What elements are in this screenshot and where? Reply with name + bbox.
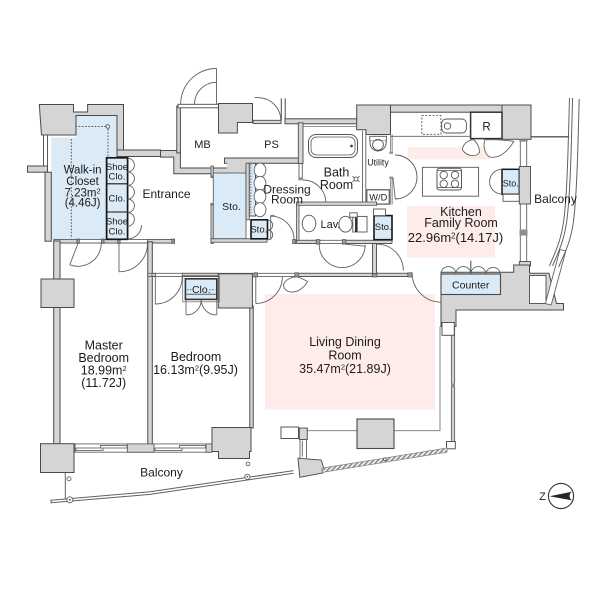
svg-text:Room: Room bbox=[328, 348, 361, 362]
svg-text:(4.46J): (4.46J) bbox=[65, 198, 101, 210]
svg-text:Balcony: Balcony bbox=[140, 465, 183, 479]
svg-text:Room: Room bbox=[271, 193, 303, 207]
svg-text:Entrance: Entrance bbox=[142, 187, 190, 201]
svg-text:Utility: Utility bbox=[367, 158, 389, 168]
svg-text:Lav.: Lav. bbox=[321, 219, 341, 231]
svg-text:(11.72J): (11.72J) bbox=[81, 376, 126, 390]
svg-text:Sto.: Sto. bbox=[503, 178, 519, 188]
svg-text:Z: Z bbox=[539, 491, 546, 503]
svg-text:MB: MB bbox=[194, 139, 211, 151]
svg-text:Sto.: Sto. bbox=[375, 222, 392, 233]
svg-text:Clo.: Clo. bbox=[192, 284, 211, 296]
svg-text:Bedroom: Bedroom bbox=[171, 350, 222, 364]
svg-text:R: R bbox=[482, 122, 490, 134]
svg-text:Clo.: Clo. bbox=[109, 172, 126, 183]
svg-text:W/D: W/D bbox=[369, 192, 387, 202]
svg-text:Clo.: Clo. bbox=[109, 193, 126, 204]
svg-text:Closet: Closet bbox=[66, 176, 99, 188]
svg-text:Counter: Counter bbox=[452, 279, 490, 291]
svg-text:Sto.: Sto. bbox=[250, 224, 267, 235]
svg-text:Walk-in: Walk-in bbox=[64, 165, 102, 177]
svg-text:Sto.: Sto. bbox=[222, 201, 241, 213]
svg-text:PS: PS bbox=[264, 139, 279, 151]
svg-text:Family Room: Family Room bbox=[424, 216, 498, 230]
svg-text:35.47m2(21.89J): 35.47m2(21.89J) bbox=[299, 362, 391, 376]
svg-text:Balcony: Balcony bbox=[534, 192, 577, 206]
svg-text:Clo.: Clo. bbox=[109, 227, 126, 238]
svg-text:22.96m2(14.17J): 22.96m2(14.17J) bbox=[408, 230, 503, 245]
svg-text:Living Dining: Living Dining bbox=[309, 335, 381, 349]
svg-text:Room: Room bbox=[320, 178, 353, 192]
